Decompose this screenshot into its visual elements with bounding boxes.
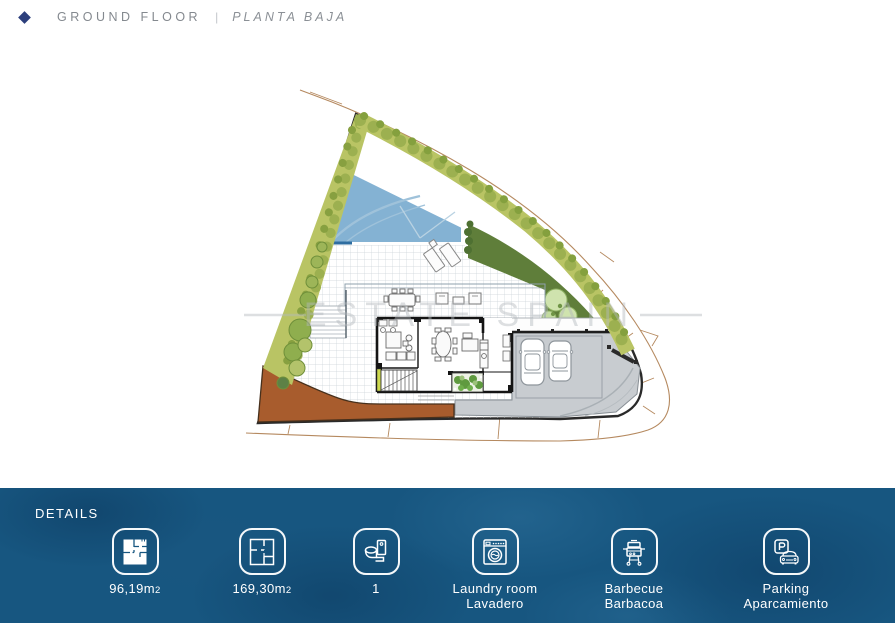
parking-icon: [763, 528, 810, 575]
details-title: DETAILS: [35, 506, 99, 521]
detail-line1: Parking: [763, 582, 810, 597]
detail-barbecue: Barbecue Barbacoa: [554, 528, 714, 612]
svg-text:ESTATE SPAIN: ESTATE SPAIN: [304, 296, 636, 334]
detail-parking: Parking Aparcamiento: [706, 528, 866, 612]
detail-line2: Lavadero: [466, 597, 523, 612]
detail-laundry: Laundry room Lavadero: [415, 528, 575, 612]
interior-patio: [452, 373, 483, 392]
detail-line2: Aparcamiento: [743, 597, 828, 612]
watermark: ESTATE SPAIN: [244, 296, 702, 334]
detail-line2: Barbacoa: [605, 597, 664, 612]
living-room-furniture: [386, 332, 415, 360]
barbecue-icon: [611, 528, 658, 575]
detail-value: 96,19m2: [109, 582, 160, 597]
car: [547, 341, 573, 381]
floorplan-filled-icon: [112, 528, 159, 575]
interior-stairs: [377, 369, 417, 391]
toilet-icon: [353, 528, 400, 575]
detail-value: 1: [372, 582, 380, 597]
details-band: DETAILS 96,19m2: [0, 488, 895, 623]
floor-plan: ESTATE SPAIN: [0, 0, 895, 488]
washing-machine-icon: [472, 528, 519, 575]
detail-line1: Laundry room: [452, 582, 537, 597]
detail-value: 169,30m2: [232, 582, 291, 597]
floorplan-outline-icon: [239, 528, 286, 575]
floor-plan-svg: ESTATE SPAIN: [0, 0, 895, 488]
car: [519, 339, 546, 385]
detail-line1: Barbecue: [605, 582, 664, 597]
